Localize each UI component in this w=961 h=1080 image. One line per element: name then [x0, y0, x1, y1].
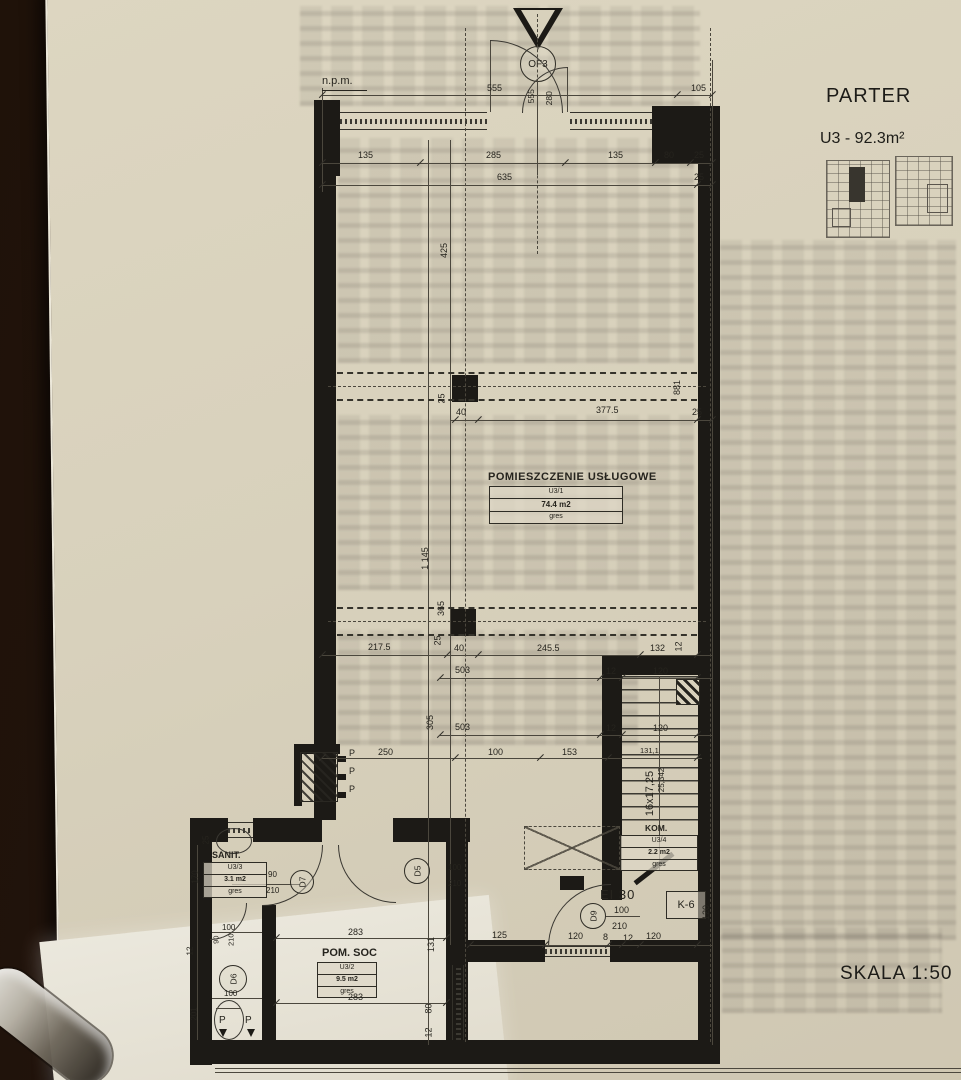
dim: 377.5 [596, 406, 619, 415]
key-plan-thumbnail-2 [895, 156, 953, 226]
dim: 90 [212, 936, 220, 944]
door-arc-d5 [338, 845, 396, 903]
dim: 280 [545, 91, 554, 105]
shaft-nub-2 [338, 774, 346, 780]
dim: 125 [492, 931, 507, 940]
room-id: U3/1 [490, 487, 622, 498]
riser-label: P [245, 1016, 252, 1026]
chain-line-5 [712, 60, 713, 1045]
stair-steps-note: 16x17,25 [645, 771, 656, 816]
dim: 555 [487, 84, 502, 93]
room-label-soc: POM. SOC [322, 948, 377, 959]
beam-dashed-1b [337, 399, 697, 401]
dim: 100 [224, 990, 237, 998]
floor-plan-drawing: OF3 [0, 0, 961, 1080]
dim: 25 [692, 408, 702, 417]
dim: 120 [653, 724, 668, 733]
dim: 503 [455, 666, 470, 675]
room-area: 2.2 m2 [621, 847, 697, 859]
dim: 120 [568, 932, 583, 941]
door-symbol-d9: D9 [580, 903, 606, 929]
dim: 120 [653, 667, 668, 676]
dim: 12 [606, 667, 616, 676]
dim: 120 [702, 905, 711, 920]
wall-left [314, 100, 336, 820]
dim-line [322, 185, 712, 186]
stair-hatch-box [676, 679, 700, 705]
void-cross-box [524, 826, 620, 870]
dim-line [322, 655, 712, 656]
dim: 25 [434, 635, 443, 645]
dim-line [212, 998, 262, 999]
sheet-rule-1 [215, 1068, 961, 1069]
dim: 120 [646, 932, 661, 941]
dim: 135 [358, 151, 373, 160]
room-label-kom: KOM. [645, 824, 667, 833]
dim: 25 [438, 393, 447, 403]
dim: 135 [608, 151, 623, 160]
riser-label: P [349, 785, 355, 794]
room-floor: gres [490, 511, 622, 523]
dim: 25 [202, 836, 210, 845]
dim-line [450, 420, 712, 421]
dim: 365 [437, 601, 446, 616]
dim-line [276, 1003, 446, 1004]
dim: 210 [448, 880, 461, 888]
key-plan-detail [832, 208, 851, 227]
dim: 881 [673, 380, 682, 395]
room-tag-soc: U3/2 9.5 m2 gres [317, 962, 377, 998]
dim: 283 [348, 993, 363, 1002]
column-2 [450, 609, 476, 636]
dim: 12 [186, 947, 194, 956]
axis-center [465, 28, 466, 1042]
riser-arrow [247, 1029, 255, 1037]
riser-label: P [349, 749, 355, 758]
wall-vestibule-bottom-a [446, 940, 545, 962]
room-id: U3/2 [318, 963, 376, 974]
scale-label: SKALA 1:50 [840, 964, 952, 983]
window-vestibule-door [545, 946, 610, 957]
dim: 100 [222, 924, 235, 932]
room-floor: gres [318, 986, 376, 998]
wall-left-outer [190, 818, 212, 1065]
wall-sanit-top-b [253, 818, 322, 842]
door-symbol-d7: D7 [290, 870, 314, 894]
dim: 8 [603, 933, 608, 942]
dim: 201 [191, 1007, 199, 1020]
room-label-main: POMIESZCZENIE USŁUGOWE [488, 472, 657, 483]
dim: 80 [664, 151, 674, 160]
page-title: PARTER [826, 86, 911, 106]
dim: 100 [448, 864, 461, 872]
dim: 170 [192, 870, 200, 883]
dim: 153 [562, 748, 577, 757]
dim: 503 [455, 723, 470, 732]
axis-entrance [537, 14, 538, 254]
dim: 283 [348, 928, 363, 937]
dim-line [606, 916, 640, 917]
beam-axis-2 [328, 621, 706, 622]
shaft-nub-3 [338, 792, 346, 798]
dim: 40 [454, 644, 464, 653]
dim: 25 [694, 151, 704, 160]
dim: 250 [378, 748, 393, 757]
stair-run-note: 25,342 [658, 768, 666, 792]
dim: 210 [228, 933, 236, 946]
beam-dashed-1a [337, 372, 697, 374]
chain-line-4 [322, 88, 323, 192]
fire-rating-label: EI 30 [600, 888, 635, 901]
dim: 100 [488, 748, 503, 757]
room-id: U3/4 [621, 836, 697, 847]
duct-label: K-6 [677, 900, 694, 911]
dim: 425 [440, 243, 449, 258]
dim: 90 [268, 871, 277, 879]
dim: 555 [527, 89, 536, 103]
sheet-rule-2 [215, 1072, 961, 1073]
beam-axis-1 [328, 386, 706, 387]
toilet-seat-line [216, 1008, 240, 1009]
door-symbol-d5: D5 [404, 858, 430, 884]
room-id: U3/3 [204, 863, 266, 874]
dim: 245.5 [537, 644, 560, 653]
dim: 305 [426, 715, 435, 730]
room-floor: gres [621, 859, 697, 871]
dim: 105 [691, 84, 706, 93]
dim: 12 [425, 1027, 434, 1037]
datum-label: n.p.m. [322, 76, 367, 91]
key-plan-thumbnail-1 [826, 160, 890, 238]
room-area: 3.1 m2 [204, 874, 266, 886]
beam-dashed-2a [337, 607, 697, 609]
window-side [452, 965, 464, 1040]
dim: 210 [612, 922, 627, 931]
dim: 635 [497, 173, 512, 182]
dim: 25 [694, 173, 704, 182]
dim: 40 [456, 408, 466, 417]
dim: 217.5 [368, 643, 391, 652]
axis-right [710, 28, 711, 1042]
dim: 12 [606, 724, 616, 733]
dim: 131 [427, 937, 436, 952]
dim: 100 [614, 906, 629, 915]
wall-under-stair [560, 876, 584, 890]
chain-line-2 [450, 140, 451, 945]
key-plan-highlight [849, 167, 865, 202]
room-area: 74.4 m2 [490, 498, 622, 511]
riser-label: P [219, 1016, 226, 1026]
dim: 12 [675, 641, 684, 651]
window-top-right [570, 112, 652, 130]
dim-line [212, 932, 262, 933]
wall-soc-top [393, 818, 470, 842]
dim: 80 [425, 1003, 434, 1013]
riser-arrow [219, 1029, 227, 1037]
room-tag-main: U3/1 74.4 m2 gres [489, 486, 623, 524]
duct-box-k6: K-6 [666, 891, 706, 919]
riser-label: P [349, 767, 355, 776]
room-area: 9.5 m2 [318, 974, 376, 986]
room-tag-kom: U3/4 2.2 m2 gres [620, 835, 698, 871]
dim: 210 [266, 887, 279, 895]
chain-line-1 [428, 140, 429, 1045]
dim: 285 [486, 151, 501, 160]
dim-line [470, 945, 712, 946]
dim-line [276, 938, 446, 939]
dim: 132 [650, 644, 665, 653]
key-plan-detail [927, 184, 948, 213]
entrance-triangle-inner [521, 10, 555, 39]
dim: 131,1 [640, 747, 659, 755]
wall-partition-sanit [262, 905, 276, 1063]
room-tag-sanit: U3/3 3.1 m2 gres [203, 862, 267, 898]
dim: 12 [623, 934, 633, 943]
beam-dashed-2b [337, 634, 697, 636]
unit-area-label: U3 - 92.3m² [820, 131, 904, 147]
photo-of-floor-plan: OF3 [0, 0, 961, 1080]
room-label-sanit: SANIT. [212, 851, 241, 860]
dim: 1 145 [421, 547, 430, 570]
dim-line [322, 95, 712, 96]
room-floor: gres [204, 886, 266, 898]
